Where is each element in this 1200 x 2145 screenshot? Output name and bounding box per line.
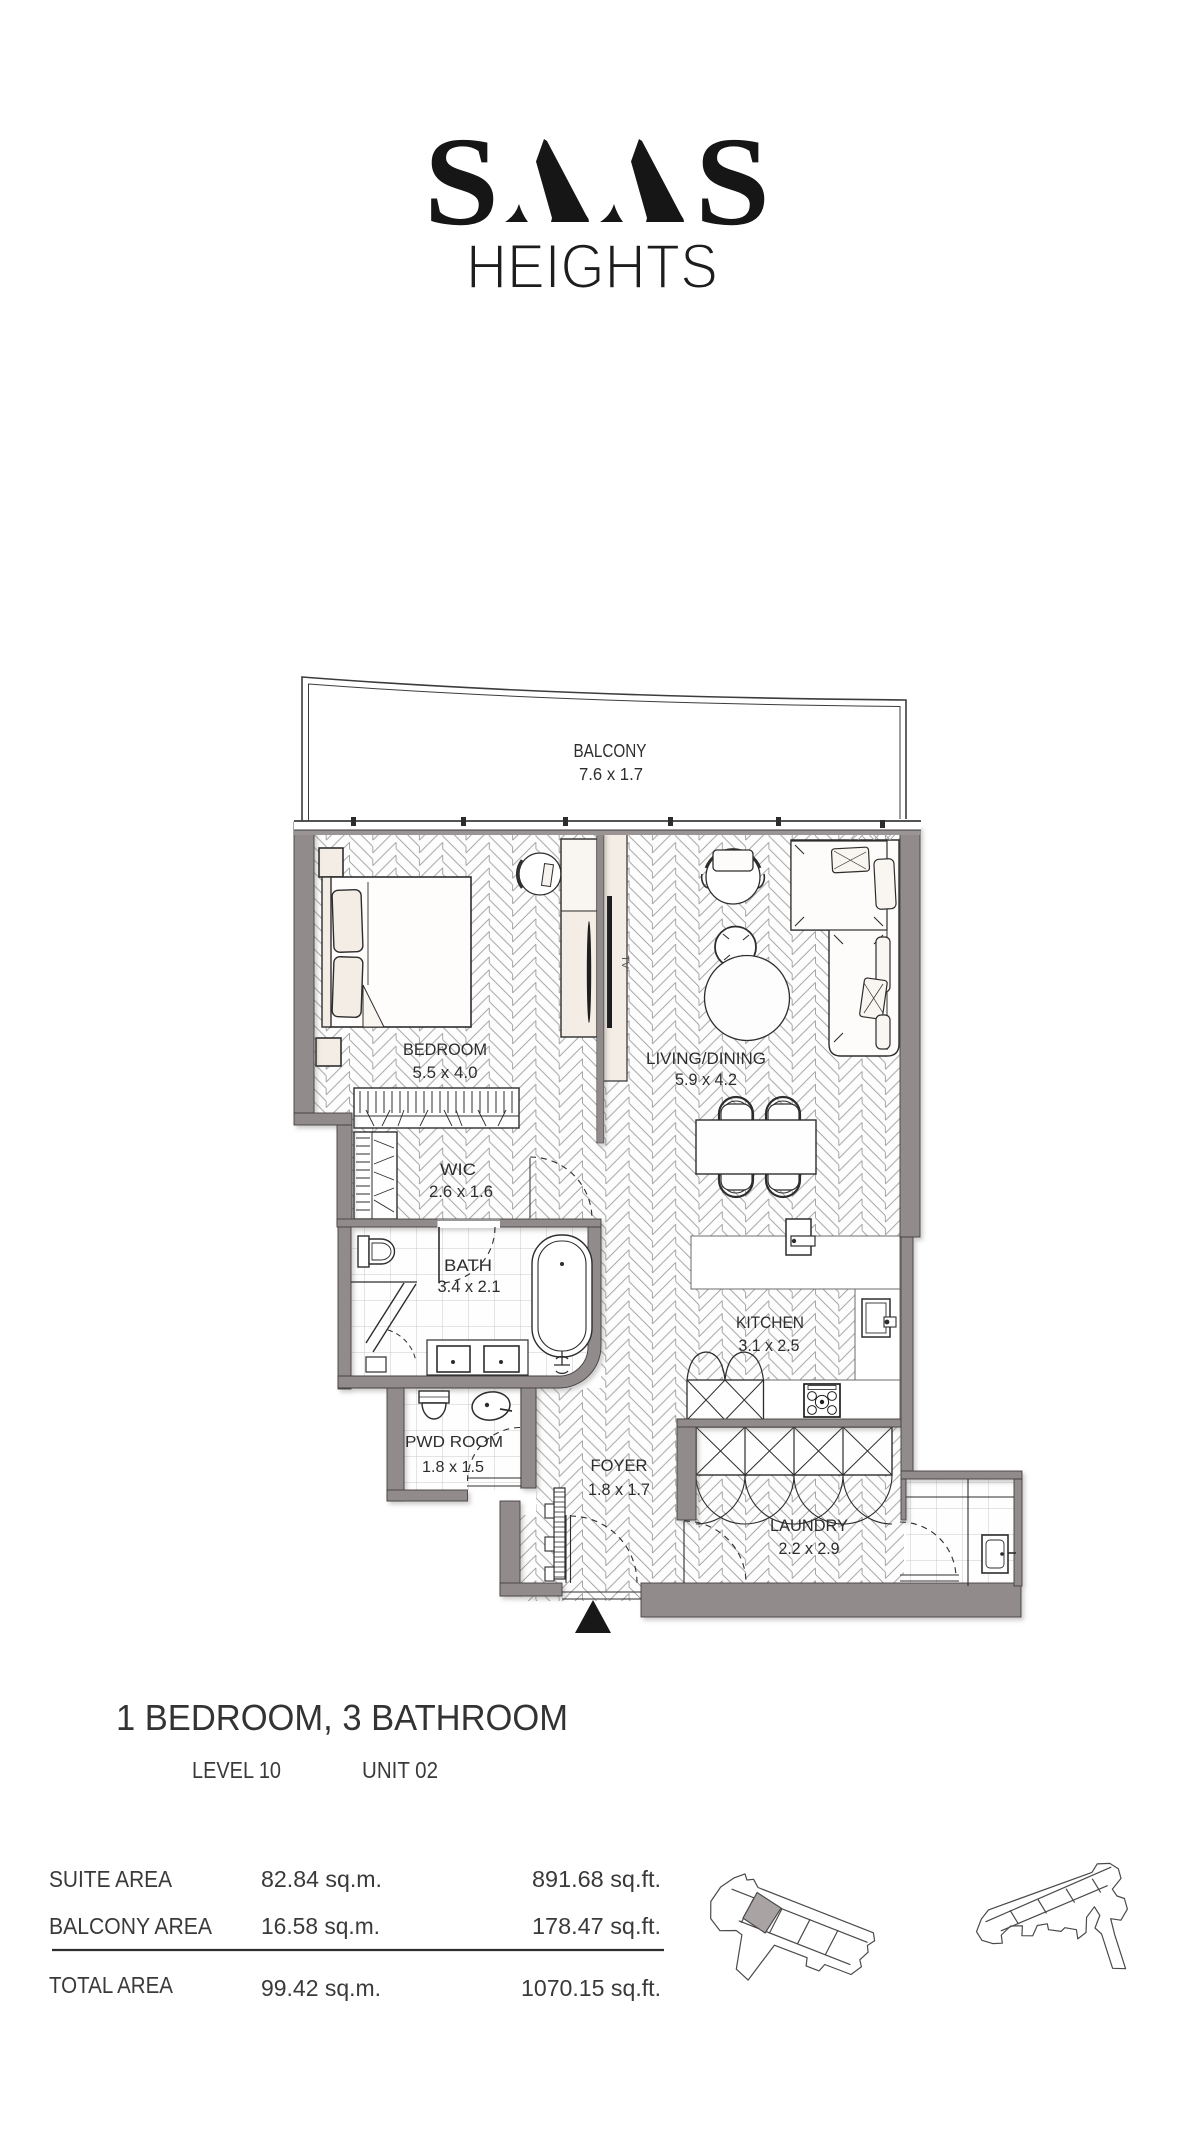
svg-text:LIVING/DINING: LIVING/DINING bbox=[646, 1049, 766, 1068]
svg-text:TV: TV bbox=[619, 955, 631, 968]
svg-text:3.4 x 2.1: 3.4 x 2.1 bbox=[438, 1277, 501, 1296]
svg-text:BALCONY AREA: BALCONY AREA bbox=[49, 1913, 213, 1939]
svg-text:LEVEL 10: LEVEL 10 bbox=[192, 1757, 281, 1783]
svg-text:178.47 sq.ft.: 178.47 sq.ft. bbox=[532, 1913, 661, 1939]
svg-text:1.8 x 1.7: 1.8 x 1.7 bbox=[588, 1480, 650, 1499]
svg-text:S: S bbox=[695, 112, 770, 252]
svg-text:LAUNDRY: LAUNDRY bbox=[770, 1516, 848, 1535]
svg-text:HEIGHTS: HEIGHTS bbox=[466, 232, 718, 302]
svg-text:5.9 x 4.2: 5.9 x 4.2 bbox=[675, 1070, 737, 1089]
svg-text:99.42 sq.m.: 99.42 sq.m. bbox=[261, 1975, 381, 2001]
svg-text:7.6 x 1.7: 7.6 x 1.7 bbox=[579, 764, 643, 784]
svg-text:3.1 x 2.5: 3.1 x 2.5 bbox=[739, 1336, 800, 1355]
svg-text:5.5 x 4.0: 5.5 x 4.0 bbox=[413, 1063, 478, 1082]
svg-text:UNIT 02: UNIT 02 bbox=[362, 1757, 438, 1783]
svg-text:2.2 x 2.9: 2.2 x 2.9 bbox=[779, 1539, 840, 1558]
svg-text:2.6 x 1.6: 2.6 x 1.6 bbox=[429, 1182, 493, 1201]
svg-text:S: S bbox=[424, 112, 499, 252]
svg-text:891.68 sq.ft.: 891.68 sq.ft. bbox=[532, 1866, 661, 1892]
svg-text:16.58 sq.m.: 16.58 sq.m. bbox=[261, 1913, 380, 1939]
svg-text:PWD ROOM: PWD ROOM bbox=[405, 1434, 503, 1451]
svg-text:WIC: WIC bbox=[440, 1160, 476, 1179]
svg-text:BEDROOM: BEDROOM bbox=[403, 1040, 487, 1059]
svg-text:FOYER: FOYER bbox=[591, 1456, 648, 1475]
svg-text:1 BEDROOM, 3 BATHROOM: 1 BEDROOM, 3 BATHROOM bbox=[116, 1697, 568, 1738]
svg-text:TOTAL AREA: TOTAL AREA bbox=[49, 1972, 174, 1998]
svg-text:82.84 sq.m.: 82.84 sq.m. bbox=[261, 1866, 382, 1892]
svg-text:BATH: BATH bbox=[444, 1256, 492, 1275]
svg-text:BALCONY: BALCONY bbox=[574, 741, 647, 761]
svg-text:KITCHEN: KITCHEN bbox=[736, 1313, 804, 1332]
svg-text:1070.15 sq.ft.: 1070.15 sq.ft. bbox=[521, 1975, 661, 2001]
svg-text:SUITE AREA: SUITE AREA bbox=[49, 1866, 173, 1892]
svg-text:1.8 x 1.5: 1.8 x 1.5 bbox=[422, 1459, 484, 1476]
